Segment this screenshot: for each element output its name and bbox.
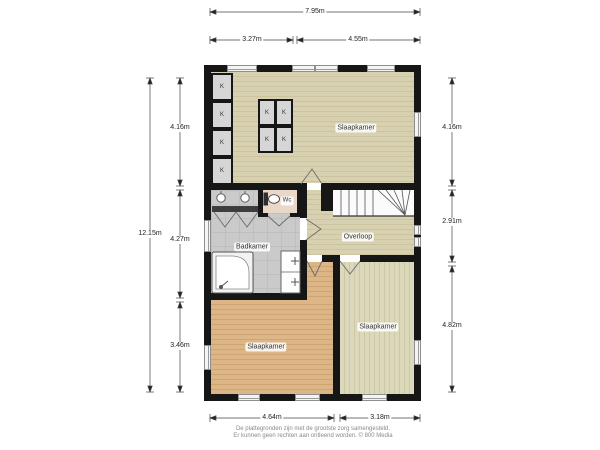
window-bottom-2 (295, 394, 320, 401)
window-top-1 (227, 65, 257, 72)
closet-k-3: K (211, 129, 233, 157)
bedroom-top-floor (211, 72, 414, 183)
dim-left-total: 12.15m (136, 230, 163, 238)
room-label-wc: Wc (281, 197, 294, 206)
room-label-landing: Overloop (342, 233, 374, 242)
footer-disclaimer-line2: Er kunnen geen rechten aan ontleend word… (13, 433, 600, 440)
closet-label: K (282, 110, 286, 116)
dim-left-middle: 4.27m (168, 236, 191, 244)
closet-label: K (220, 168, 224, 174)
wall-mid-horizontal-right (322, 183, 421, 190)
closet-label: K (265, 137, 269, 143)
window-bottom-1 (238, 394, 260, 401)
closet-k-4: K (211, 157, 233, 185)
dim-bottom-left: 4.64m (260, 414, 283, 422)
closet-k-6: K (275, 99, 293, 126)
room-label-bathroom: Badkamer (234, 243, 270, 252)
closet-label: K (265, 110, 269, 116)
window-right-landing-b (414, 237, 421, 247)
window-left-bathroom (204, 220, 211, 252)
closet-k-7: K (258, 126, 276, 153)
dim-right-middle: 2.91m (440, 218, 463, 226)
closet-label: K (282, 137, 286, 143)
window-bottom-3 (362, 394, 387, 401)
room-label-bedroom-top: Slaapkamer (335, 124, 376, 133)
dim-top-total: 7.95m (303, 8, 326, 16)
wall-between-bottom-bedrooms (333, 255, 340, 394)
dim-right-bottom: 4.82m (440, 322, 463, 330)
dim-left-top: 4.16m (168, 124, 191, 132)
window-top-2a (292, 65, 315, 72)
footer-disclaimer-line1: De plattegronden zijn met de grootste zo… (13, 426, 600, 433)
closet-k-1: K (211, 73, 233, 101)
room-label-bedroom-bottom-right: Slaapkamer (357, 323, 398, 332)
window-left-bedroom (204, 345, 211, 370)
dim-top-left: 3.27m (240, 36, 263, 44)
closet-label: K (220, 84, 224, 90)
window-top-3 (367, 65, 395, 72)
dim-left-bottom: 3.46m (168, 342, 191, 350)
dim-right-top: 4.16m (440, 124, 463, 132)
window-right-bedroom-bottom (414, 340, 421, 365)
dim-bottom-right: 3.18m (368, 414, 391, 422)
room-label-bedroom-bottom-left: Slaapkamer (245, 343, 286, 352)
wall-bathroom-right-lower (300, 240, 307, 300)
bathroom-counter (212, 206, 258, 212)
dim-top-right: 4.55m (346, 36, 369, 44)
closet-k-5: K (258, 99, 276, 126)
closet-label: K (220, 140, 224, 146)
closet-label: K (220, 112, 224, 118)
window-top-2b (315, 65, 338, 72)
wall-landing-bottom-right (360, 255, 414, 262)
bedroom-bottom-left-floor-strip (307, 262, 333, 300)
floorplan-page: K K K K K K K K (0, 0, 600, 450)
closet-k-8: K (275, 126, 293, 153)
window-right-landing-a (414, 225, 421, 235)
wc-door-opening (268, 213, 290, 217)
wall-bathroom-bottom (204, 293, 307, 300)
wall-stair-stub (321, 183, 333, 211)
closet-k-2: K (211, 101, 233, 129)
window-right-bedroom-top (414, 112, 421, 137)
